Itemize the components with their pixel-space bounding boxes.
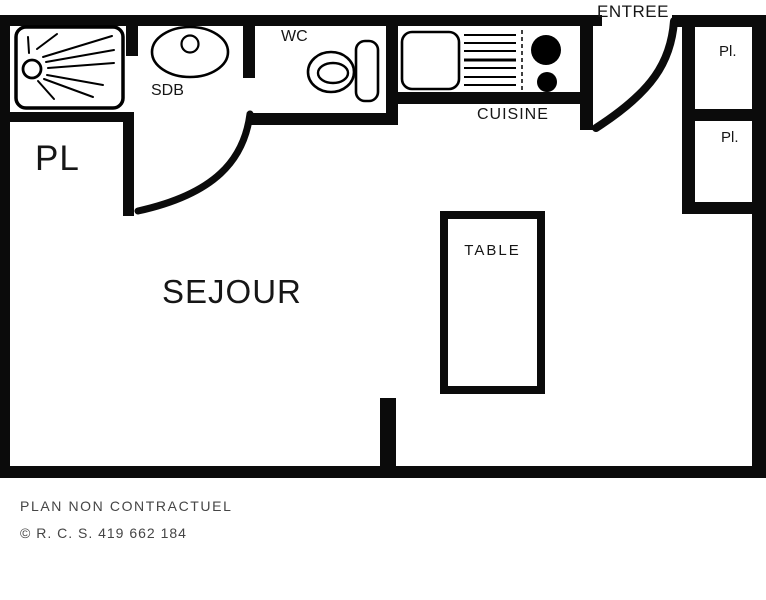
wall-right xyxy=(752,17,766,478)
hob-burners-icon xyxy=(531,35,561,92)
sejour-door-swing-icon xyxy=(138,114,250,211)
kitchen-label: CUISINE xyxy=(477,107,549,123)
shower-tray-icon xyxy=(16,27,123,108)
table: TABLE xyxy=(440,211,545,394)
closet-left-label: PL xyxy=(35,141,80,176)
wall-closet-bottom xyxy=(682,202,766,214)
wall-sdb-wc xyxy=(243,20,255,78)
closet-right-top-label: Pl. xyxy=(719,44,737,59)
wall-shower-bottom xyxy=(0,112,134,122)
wc-label: WC xyxy=(281,29,308,45)
bathroom-label: SDB xyxy=(151,83,184,99)
registration-text: © R. C. S. 419 662 184 xyxy=(20,526,187,540)
entry-door-swing-icon xyxy=(596,21,674,128)
disclaimer-text: PLAN NON CONTRACTUEL xyxy=(20,499,232,513)
drainer-lines-icon xyxy=(464,30,522,90)
kitchen-sink-icon xyxy=(402,32,459,89)
wall-wc-kitchen xyxy=(386,18,398,125)
wall-wc-bottom xyxy=(250,113,398,125)
wall-pl-right xyxy=(123,112,134,216)
floor-plan: TABLE ENTREE WC SDB CUISINE Pl. Pl. PL S… xyxy=(0,0,766,600)
wall-bottom-stub xyxy=(380,398,396,468)
wall-left xyxy=(0,15,10,478)
entrance-label: ENTREE xyxy=(597,3,669,20)
wall-shower-sdb-stub xyxy=(126,20,138,56)
living-room-label: SEJOUR xyxy=(162,275,302,308)
closet-right-bottom-label: Pl. xyxy=(721,130,739,145)
wall-kitchen-counter-front xyxy=(390,92,593,104)
washbasin-icon xyxy=(152,27,228,77)
wall-top-left xyxy=(0,15,602,26)
wall-closet-divider xyxy=(682,109,766,121)
table-label: TABLE xyxy=(464,243,520,258)
toilet-icon xyxy=(308,41,378,101)
wall-kitchen-entry xyxy=(580,18,593,130)
